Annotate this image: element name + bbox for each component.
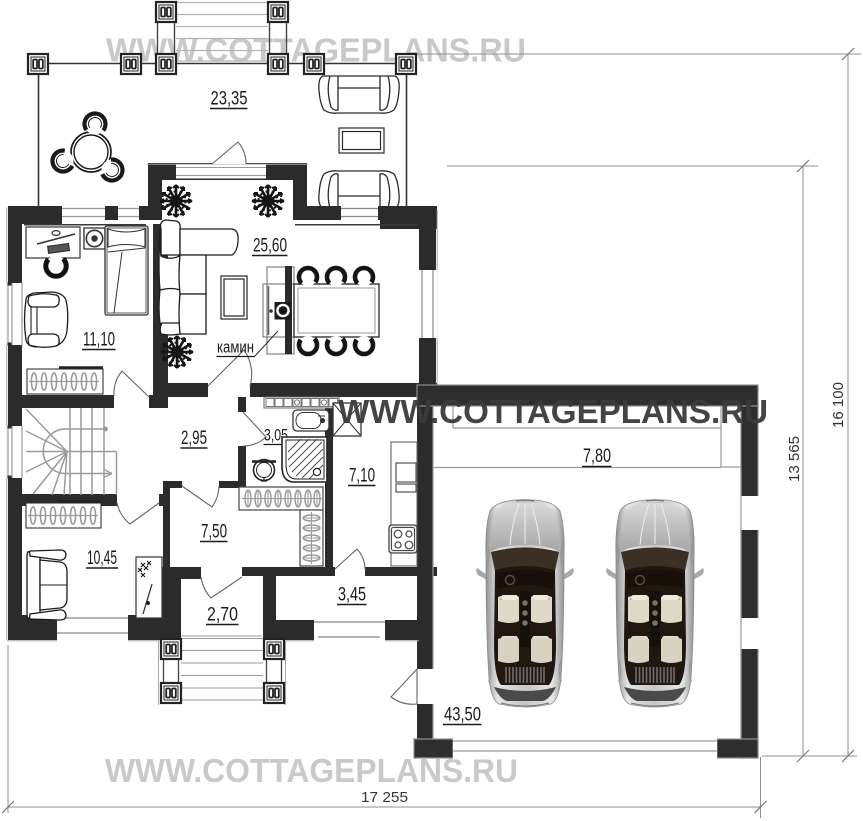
svg-text:7,50: 7,50 [201, 522, 227, 543]
svg-text:7,10: 7,10 [349, 466, 375, 487]
svg-text:3,45: 3,45 [338, 585, 366, 606]
svg-text:WWW.COTTAGEPLANS.RU: WWW.COTTAGEPLANS.RU [338, 393, 768, 430]
svg-text:11,10: 11,10 [83, 330, 115, 351]
svg-text:2,70: 2,70 [207, 605, 238, 626]
svg-text:17 255: 17 255 [361, 789, 408, 806]
svg-text:16 100: 16 100 [830, 382, 847, 428]
svg-text:13 565: 13 565 [786, 436, 803, 482]
svg-text:7,80: 7,80 [583, 446, 611, 467]
svg-text:камин: камин [217, 338, 254, 357]
svg-text:10,45: 10,45 [87, 548, 117, 569]
svg-text:43,50: 43,50 [444, 705, 481, 726]
svg-text:25,60: 25,60 [253, 236, 287, 257]
svg-text:23,35: 23,35 [211, 89, 248, 110]
svg-text:2,95: 2,95 [181, 428, 207, 449]
